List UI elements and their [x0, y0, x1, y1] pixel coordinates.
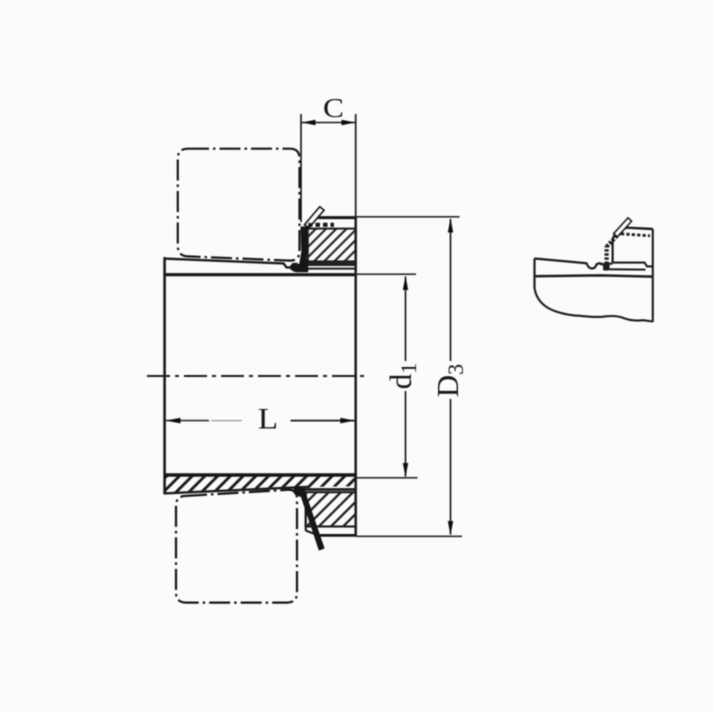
svg-text:L: L [258, 402, 278, 435]
svg-text:d1: d1 [383, 363, 421, 390]
svg-text:C: C [323, 94, 344, 124]
svg-text:D3: D3 [430, 364, 468, 397]
